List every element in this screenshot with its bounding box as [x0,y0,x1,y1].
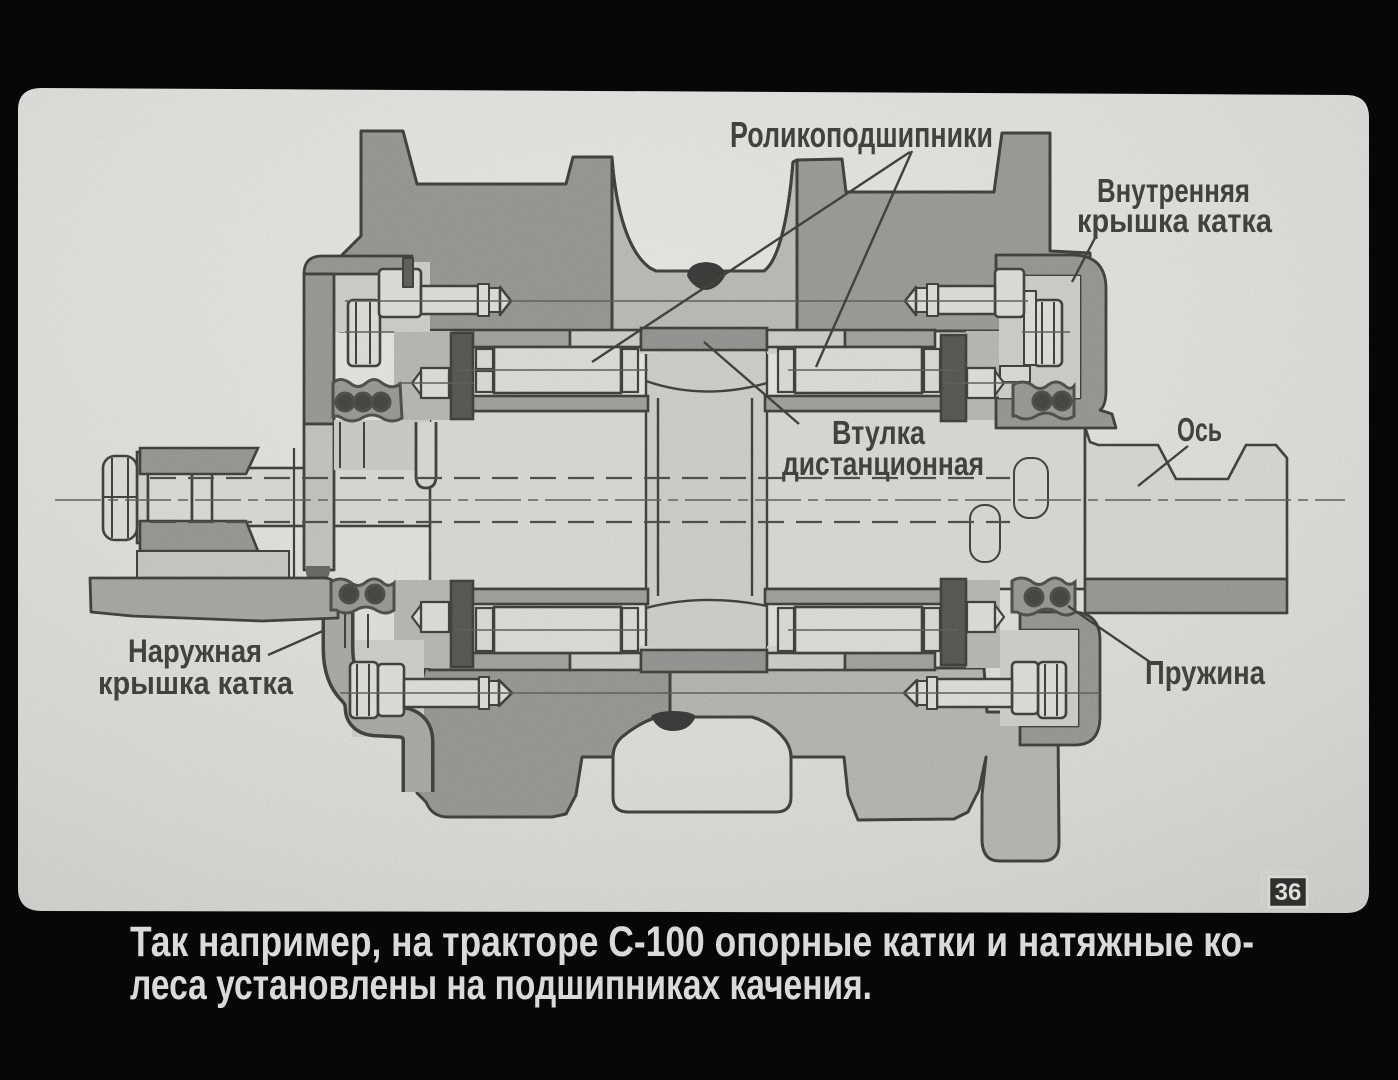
svg-text:леса установлены на подшипника: леса установлены на подшипниках качения. [130,961,872,1009]
svg-text:Так например, на тракторе С-10: Так например, на тракторе С-100 опорные … [130,918,1254,966]
